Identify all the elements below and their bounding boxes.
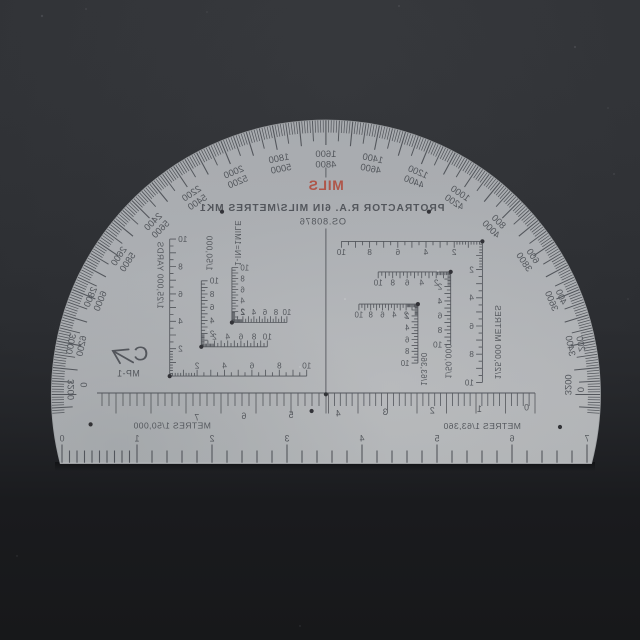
svg-text:4: 4 xyxy=(209,316,214,325)
svg-text:6: 6 xyxy=(405,335,409,344)
svg-text:1/25,000 YARDS: 1/25,000 YARDS xyxy=(156,241,165,308)
svg-text:2: 2 xyxy=(209,330,214,339)
svg-text:6: 6 xyxy=(395,248,400,257)
svg-text:1: 1 xyxy=(477,404,482,414)
svg-text:2: 2 xyxy=(405,312,409,321)
svg-text:8: 8 xyxy=(437,326,442,335)
svg-text:MILS: MILS xyxy=(308,178,344,193)
svg-text:7: 7 xyxy=(584,434,589,444)
svg-text:4: 4 xyxy=(222,362,227,371)
svg-text:5: 5 xyxy=(434,434,439,444)
svg-text:6: 6 xyxy=(404,278,409,287)
svg-text:3200: 3200 xyxy=(563,374,574,395)
svg-text:4: 4 xyxy=(419,278,424,287)
svg-text:4: 4 xyxy=(391,311,396,320)
svg-text:PROTRACTOR R.A. 6IN MILS/METRE: PROTRACTOR R.A. 6IN MILS/METRES MK1 xyxy=(199,203,444,214)
svg-text:10: 10 xyxy=(282,308,291,317)
svg-text:2: 2 xyxy=(469,266,474,275)
svg-text:0: 0 xyxy=(59,434,64,444)
svg-text:10: 10 xyxy=(336,248,346,257)
svg-text:6: 6 xyxy=(469,322,474,331)
svg-text:10: 10 xyxy=(464,378,474,387)
svg-text:METRES 1/63,360: METRES 1/63,360 xyxy=(443,421,521,431)
svg-text:10: 10 xyxy=(302,362,312,371)
svg-text:6: 6 xyxy=(238,332,243,341)
svg-text:2: 2 xyxy=(451,248,456,257)
svg-text:10: 10 xyxy=(373,278,383,287)
svg-text:1/25,000 METRES: 1/25,000 METRES xyxy=(493,305,502,379)
svg-text:4: 4 xyxy=(251,308,256,317)
svg-text:3200: 3200 xyxy=(65,379,76,400)
svg-text:METRES 1/50,000: METRES 1/50,000 xyxy=(133,421,211,431)
svg-text:4: 4 xyxy=(336,408,341,418)
svg-text:1: 1 xyxy=(134,434,139,444)
svg-text:8: 8 xyxy=(251,332,256,341)
svg-text:6: 6 xyxy=(380,311,384,320)
svg-text:4: 4 xyxy=(178,317,183,326)
svg-text:1-IN=1MILE: 1-IN=1MILE xyxy=(233,220,242,266)
svg-text:OS.80876: OS.80876 xyxy=(299,217,346,227)
svg-text:10: 10 xyxy=(209,277,219,286)
svg-text:8: 8 xyxy=(405,347,409,356)
svg-text:4: 4 xyxy=(404,324,409,333)
svg-text:8: 8 xyxy=(178,262,183,271)
svg-text:1/50,000: 1/50,000 xyxy=(205,235,214,270)
svg-text:1/63,360: 1/63,360 xyxy=(419,352,428,386)
svg-text:0: 0 xyxy=(524,403,529,413)
svg-text:2: 2 xyxy=(178,345,183,354)
svg-text:4: 4 xyxy=(437,297,442,306)
svg-text:4: 4 xyxy=(225,332,230,341)
svg-text:4: 4 xyxy=(469,294,474,303)
svg-text:6: 6 xyxy=(241,411,246,421)
svg-text:10: 10 xyxy=(433,340,443,349)
svg-text:6: 6 xyxy=(509,434,514,444)
svg-text:6: 6 xyxy=(178,290,183,299)
svg-text:6: 6 xyxy=(209,303,214,312)
svg-text:C: C xyxy=(133,343,148,366)
svg-text:MP-1: MP-1 xyxy=(117,368,140,378)
svg-text:3: 3 xyxy=(284,434,289,444)
svg-text:2: 2 xyxy=(437,282,442,291)
svg-text:0: 0 xyxy=(78,382,89,387)
svg-text:8: 8 xyxy=(274,308,278,317)
svg-text:4: 4 xyxy=(423,248,428,257)
svg-text:6: 6 xyxy=(249,362,254,371)
svg-text:10: 10 xyxy=(262,332,272,341)
svg-text:8: 8 xyxy=(209,290,214,299)
svg-text:6: 6 xyxy=(263,308,267,317)
svg-text:2: 2 xyxy=(209,434,214,444)
svg-text:10: 10 xyxy=(354,311,363,320)
svg-text:4: 4 xyxy=(240,296,245,305)
svg-text:10: 10 xyxy=(178,235,188,244)
svg-text:0: 0 xyxy=(576,387,587,392)
svg-text:8: 8 xyxy=(367,248,372,257)
svg-text:4: 4 xyxy=(359,434,364,444)
svg-text:2: 2 xyxy=(430,405,435,415)
svg-text:1/50,000: 1/50,000 xyxy=(444,343,453,378)
svg-text:8: 8 xyxy=(369,311,373,320)
svg-text:8: 8 xyxy=(469,350,474,359)
svg-text:5: 5 xyxy=(288,410,293,420)
svg-text:6: 6 xyxy=(240,285,244,294)
svg-text:8: 8 xyxy=(390,278,395,287)
svg-text:1600: 1600 xyxy=(315,148,336,159)
svg-text:8: 8 xyxy=(240,274,244,283)
svg-text:8: 8 xyxy=(277,362,282,371)
svg-text:2: 2 xyxy=(194,362,199,371)
svg-text:10: 10 xyxy=(400,359,409,368)
svg-text:3: 3 xyxy=(383,407,388,417)
svg-text:2: 2 xyxy=(240,307,244,316)
svg-text:6: 6 xyxy=(437,311,442,320)
